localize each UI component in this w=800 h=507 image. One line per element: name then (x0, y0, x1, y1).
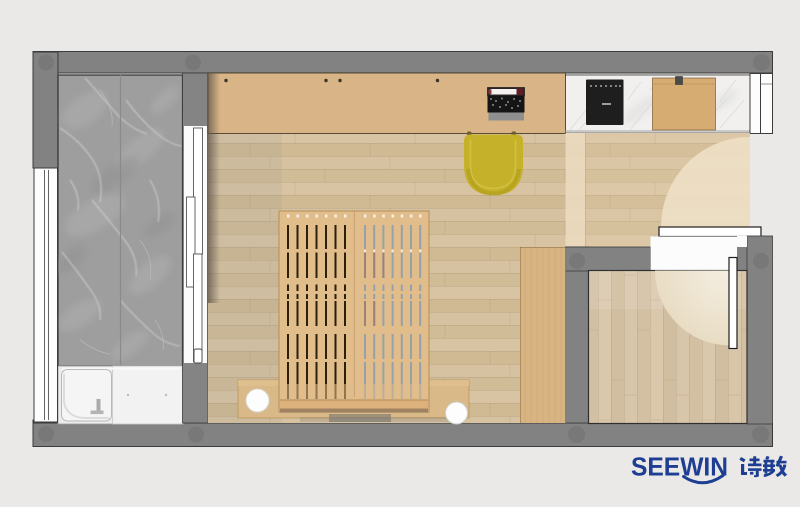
svg-text:SEEWIN: SEEWIN (631, 452, 728, 482)
